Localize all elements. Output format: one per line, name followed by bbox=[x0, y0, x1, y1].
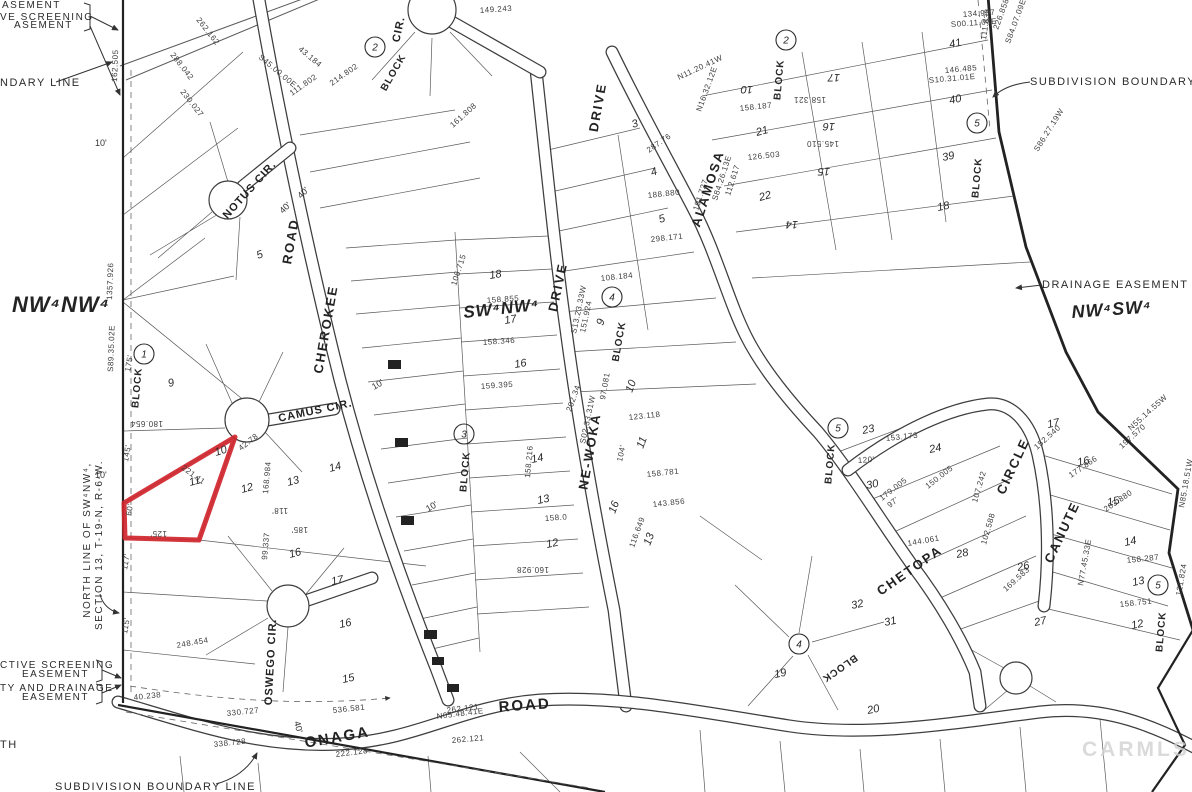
measurement: 158.0 bbox=[545, 512, 568, 523]
measurement: 162.505 bbox=[110, 49, 120, 82]
leader-lines bbox=[56, 3, 1042, 784]
lot-number: 5 bbox=[657, 212, 667, 226]
measurement: 248.454 bbox=[176, 635, 210, 650]
bottom-cul-de-sac bbox=[1000, 662, 1032, 694]
lot-number: 13 bbox=[642, 531, 658, 547]
measurement: 115' bbox=[120, 617, 132, 635]
north-line-note-1: NORTH LINE OF SW⁴NW⁴, bbox=[82, 462, 93, 617]
lot-number: 18 bbox=[936, 199, 951, 213]
measurement: 288.042 bbox=[168, 51, 195, 82]
lot-number: 39 bbox=[941, 150, 955, 164]
subdivision-boundary-note-right: SUBDIVISION BOUNDARY LINE bbox=[1030, 76, 1192, 88]
dimension-tick: 10' bbox=[370, 377, 385, 392]
measurement: 262.162 bbox=[194, 16, 221, 47]
lot-number: 10 bbox=[624, 378, 640, 394]
measurement: 143.856 bbox=[652, 497, 685, 509]
dimension-tick: 40' bbox=[292, 720, 305, 734]
lot-number: 19 bbox=[773, 667, 787, 681]
dimension-tick: 10' bbox=[95, 470, 107, 480]
measurement: 298.171 bbox=[650, 232, 683, 244]
lot-number: 15 bbox=[341, 671, 356, 685]
plat-map-scan: CHEROKEEROADNE-WOKADRIVEALAMOSADRIVECHET… bbox=[0, 0, 1192, 792]
measurement: 180.654 bbox=[131, 419, 163, 428]
lot-number: 14 bbox=[530, 452, 544, 466]
measurement: 60' bbox=[124, 503, 135, 516]
lot-number: 16 bbox=[513, 357, 528, 371]
measurement: 106.715 bbox=[449, 253, 468, 287]
measurement: 149.243 bbox=[480, 4, 513, 15]
measurement: 214.802 bbox=[328, 62, 360, 88]
block-number: 4 bbox=[609, 293, 615, 304]
measurement: 104' bbox=[615, 444, 627, 462]
block-label: BLOCK bbox=[772, 59, 786, 100]
easement-note-top: ASEMENT bbox=[2, 0, 61, 11]
drainage-easement-note: DRAINAGE EASEMENT bbox=[1042, 279, 1189, 291]
measurement: N77.45.33E bbox=[1076, 538, 1093, 586]
measurement: 158.781 bbox=[646, 467, 679, 479]
measurement: 158.321 bbox=[794, 95, 826, 104]
lot-number: 16 bbox=[338, 616, 353, 630]
utility-drainage-note-2: EASEMENT bbox=[22, 692, 89, 703]
north-line-note-2: SECTION 13, T-19-N, R-6-W. bbox=[94, 460, 105, 630]
lot-number: 13 bbox=[536, 492, 551, 506]
block-label: BLOCK bbox=[379, 52, 409, 93]
measurement: 158.751 bbox=[1119, 597, 1152, 609]
measurement: S10.31.01E bbox=[928, 72, 975, 85]
measurement: 125' bbox=[150, 529, 167, 538]
lot-number: 40 bbox=[948, 92, 963, 106]
nw-sw-quarter-label: NW⁴SW⁴ bbox=[1071, 296, 1153, 322]
subdivision-boundary-note-bottom: SUBDIVISION BOUNDARY LINE bbox=[55, 781, 256, 792]
block-number: 3 bbox=[461, 430, 467, 441]
lot-number: 15 bbox=[817, 165, 830, 177]
lot-number: 12 bbox=[240, 481, 255, 496]
measurement: 160.928 bbox=[517, 565, 549, 574]
measurement: 536.581 bbox=[332, 703, 365, 715]
measurement: 188.880 bbox=[647, 188, 680, 200]
alamosa-drive-label: DRIVE bbox=[586, 81, 609, 133]
block-number: 2 bbox=[371, 43, 378, 54]
block-label: BLOCK bbox=[130, 367, 144, 408]
block-number: 4 bbox=[796, 640, 802, 651]
measurement: 40.238 bbox=[133, 690, 161, 702]
block-label: BLOCK bbox=[1154, 611, 1168, 652]
measurement: 107.242 bbox=[970, 470, 988, 504]
protective-screening-note-2: EASEMENT bbox=[22, 669, 89, 680]
nw-nw-quarter-label: NW⁴NW⁴ bbox=[12, 292, 110, 317]
measurement: 117' bbox=[120, 553, 132, 571]
top-cul-de-sac bbox=[408, 0, 456, 34]
lot-number: 31 bbox=[883, 615, 897, 629]
measurement: 121.824 bbox=[1174, 563, 1189, 597]
block-number: 5 bbox=[1155, 581, 1161, 592]
lot-number: 9 bbox=[594, 317, 607, 327]
lot-number: 13 bbox=[286, 474, 302, 489]
canute-circle-label: CIRCLE bbox=[993, 436, 1032, 497]
measurement: S86.27.19W bbox=[1032, 107, 1066, 153]
dimension-tick: 10' bbox=[95, 138, 107, 148]
measurement: 126.503 bbox=[747, 150, 780, 162]
measurement: 118' bbox=[272, 506, 288, 515]
boundary-line-note-left: NDARY LINE bbox=[0, 77, 81, 89]
cutoff-note-th: TH bbox=[0, 739, 18, 751]
measurement: 150.005 bbox=[924, 463, 955, 490]
block-label: BLOCK bbox=[823, 443, 837, 484]
camus-cir-label: CAMUS CIR. bbox=[277, 397, 353, 424]
measurement: 43.184 bbox=[297, 45, 324, 70]
block-label: BLOCK bbox=[820, 652, 860, 684]
measurement: 145.510 bbox=[807, 139, 839, 148]
block-label: BLOCK bbox=[458, 451, 472, 492]
measurement: 230.027 bbox=[178, 88, 205, 119]
lot-number: 13 bbox=[1131, 574, 1146, 588]
lot-number: 12 bbox=[1130, 618, 1144, 632]
oswego-cir-label: OSWEGO CIR. bbox=[263, 618, 280, 705]
block-number: 2 bbox=[782, 36, 789, 47]
lot-number: 32 bbox=[850, 598, 864, 612]
plat-map-drawing: CHEROKEEROADNE-WOKADRIVEALAMOSADRIVECHET… bbox=[0, 0, 1192, 792]
lot-number: 20 bbox=[865, 702, 881, 717]
measurement: N55.14.55W bbox=[1126, 393, 1169, 433]
measurement: 102.588 bbox=[979, 512, 997, 546]
lot-number: 16 bbox=[288, 546, 304, 561]
measurement: 108.184 bbox=[600, 271, 633, 283]
lot-number: 30 bbox=[865, 477, 880, 491]
block-number: 5 bbox=[835, 424, 841, 435]
measurement: 338.728 bbox=[213, 737, 246, 749]
roads bbox=[118, 0, 1192, 748]
lot-number: 4 bbox=[649, 166, 659, 179]
cherokee-road-label: ROAD bbox=[279, 217, 302, 265]
measurement: 158.346 bbox=[483, 336, 516, 347]
lot-number: 10 bbox=[740, 83, 753, 95]
block-number: 5 bbox=[974, 119, 980, 130]
lot-number: 14 bbox=[786, 218, 798, 230]
dimension-tick: 40' bbox=[277, 200, 293, 216]
measurement: N85.18.51W bbox=[1177, 458, 1192, 508]
lot-number: 14 bbox=[328, 460, 343, 475]
measurement: 159.395 bbox=[481, 380, 514, 391]
lot-number: 16 bbox=[607, 499, 623, 515]
watermark: CARMLS bbox=[1082, 738, 1190, 761]
measurement: 97.081 bbox=[598, 372, 612, 401]
lot-number: 23 bbox=[860, 422, 876, 437]
measurement: 99.337 bbox=[260, 532, 271, 560]
lot-number: 21 bbox=[754, 124, 770, 139]
block-label: BLOCK bbox=[611, 321, 629, 363]
lot-number: 22 bbox=[757, 189, 773, 204]
measurement: 161.808 bbox=[448, 101, 478, 129]
lot-number: 24 bbox=[927, 442, 942, 456]
dimension-tick: 10' bbox=[424, 499, 439, 514]
lot-number: 41 bbox=[948, 37, 962, 51]
block-label: BLOCK bbox=[970, 157, 984, 198]
measurement: 120' bbox=[858, 455, 875, 465]
lot-number: 18 bbox=[488, 268, 503, 282]
top-cir-label: CIR. bbox=[390, 15, 407, 43]
lot-number: 27 bbox=[1032, 614, 1048, 629]
measurement: 185' bbox=[291, 525, 308, 534]
lot-number: 28 bbox=[954, 546, 970, 561]
lot-number: 17 bbox=[827, 71, 840, 83]
block-number: 1 bbox=[141, 350, 147, 361]
measurement: S89.35.02E bbox=[106, 325, 117, 372]
lot-number: 12 bbox=[545, 537, 559, 551]
measurement: N11.20.41W bbox=[676, 53, 724, 82]
lot-number: 9 bbox=[167, 377, 176, 390]
measurement: 123.118 bbox=[628, 410, 661, 422]
camus-cul-de-sac bbox=[225, 398, 269, 442]
measurement: 1357.926 bbox=[105, 262, 115, 300]
lot-number: 14 bbox=[1123, 535, 1137, 549]
onaga-road-label: ROAD bbox=[498, 695, 551, 716]
screening-easement-note-2: ASEMENT bbox=[14, 20, 73, 31]
lot-number: 5 bbox=[255, 248, 266, 262]
measurement: 158.187 bbox=[739, 101, 772, 113]
measurement: 330.727 bbox=[226, 706, 259, 718]
measurement: 168.984 bbox=[261, 461, 273, 494]
lot-number: 16 bbox=[822, 120, 835, 132]
measurement: 262.121 bbox=[451, 733, 484, 745]
lot-number: 11 bbox=[635, 435, 650, 450]
